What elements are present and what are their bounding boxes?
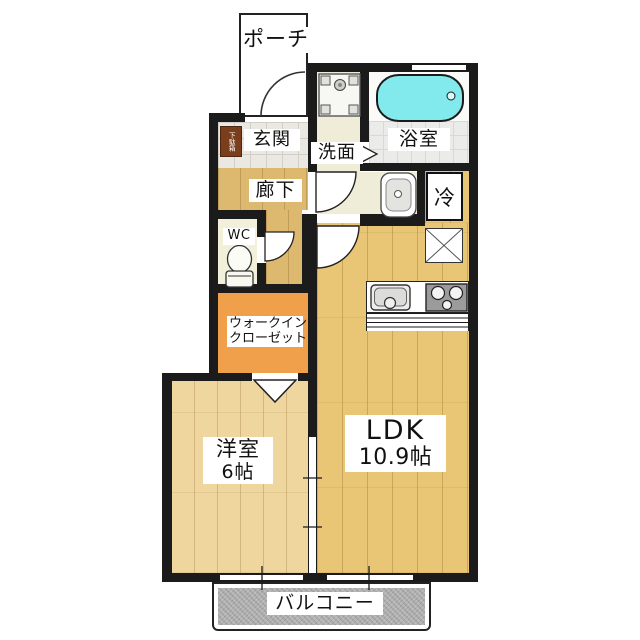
wall bbox=[308, 381, 317, 437]
wall bbox=[360, 72, 369, 142]
western-room-size: 6帖 bbox=[205, 462, 271, 483]
closet-label: ウォークイン クローゼット bbox=[227, 316, 303, 347]
wall bbox=[303, 573, 327, 582]
wall bbox=[209, 373, 252, 381]
wall bbox=[302, 214, 317, 293]
ldk-window bbox=[327, 573, 413, 582]
wall bbox=[417, 171, 425, 223]
bathroom-label: 浴室 bbox=[388, 128, 450, 151]
wall bbox=[257, 210, 266, 237]
wall bbox=[209, 284, 317, 293]
bathroom-floor-upper bbox=[369, 72, 469, 121]
wall bbox=[469, 63, 478, 582]
western-room-window bbox=[220, 573, 303, 582]
shoe-cabinet-label: 下駄箱 bbox=[221, 127, 241, 156]
wall bbox=[298, 373, 317, 381]
western-room-name: 洋室 bbox=[205, 438, 271, 462]
ldk-floor bbox=[317, 223, 469, 573]
ldk-size: 10.9帖 bbox=[347, 446, 444, 471]
wc-label: WC bbox=[223, 228, 255, 245]
closet-label-line2: クローゼット bbox=[229, 332, 301, 347]
kitchen-counter-front bbox=[366, 313, 469, 331]
wall bbox=[308, 63, 412, 72]
refrigerator-space: 冷 bbox=[426, 172, 463, 221]
western-room-label: 洋室 6帖 bbox=[203, 437, 273, 484]
ldk-name: LDK bbox=[347, 416, 444, 446]
wall bbox=[308, 284, 317, 381]
shoe-cabinet: 下駄箱 bbox=[220, 126, 242, 157]
balcony-label: バルコニー bbox=[267, 592, 383, 615]
wall bbox=[413, 573, 478, 582]
porch-label: ポーチ bbox=[241, 27, 309, 53]
storage-space bbox=[425, 228, 463, 263]
wall bbox=[209, 113, 218, 381]
floor-plan: 冷 下駄箱 bbox=[0, 0, 640, 640]
wall bbox=[360, 214, 425, 226]
bathroom-window bbox=[412, 63, 466, 72]
entrance-label: 玄関 bbox=[244, 129, 300, 151]
wall bbox=[162, 373, 172, 582]
wall bbox=[162, 573, 220, 582]
washroom-floor-lower bbox=[317, 172, 417, 214]
kitchen-counter bbox=[366, 281, 469, 313]
refrigerator-label: 冷 bbox=[434, 182, 455, 212]
hallway-vestibule-floor bbox=[266, 210, 302, 284]
closet-label-line1: ウォークイン bbox=[229, 317, 301, 332]
ldk-label: LDK 10.9帖 bbox=[345, 415, 446, 472]
wall bbox=[360, 163, 469, 171]
washroom-label: 洗面 bbox=[311, 142, 363, 164]
hallway-label: 廊下 bbox=[249, 179, 302, 202]
sliding-door bbox=[308, 437, 317, 573]
